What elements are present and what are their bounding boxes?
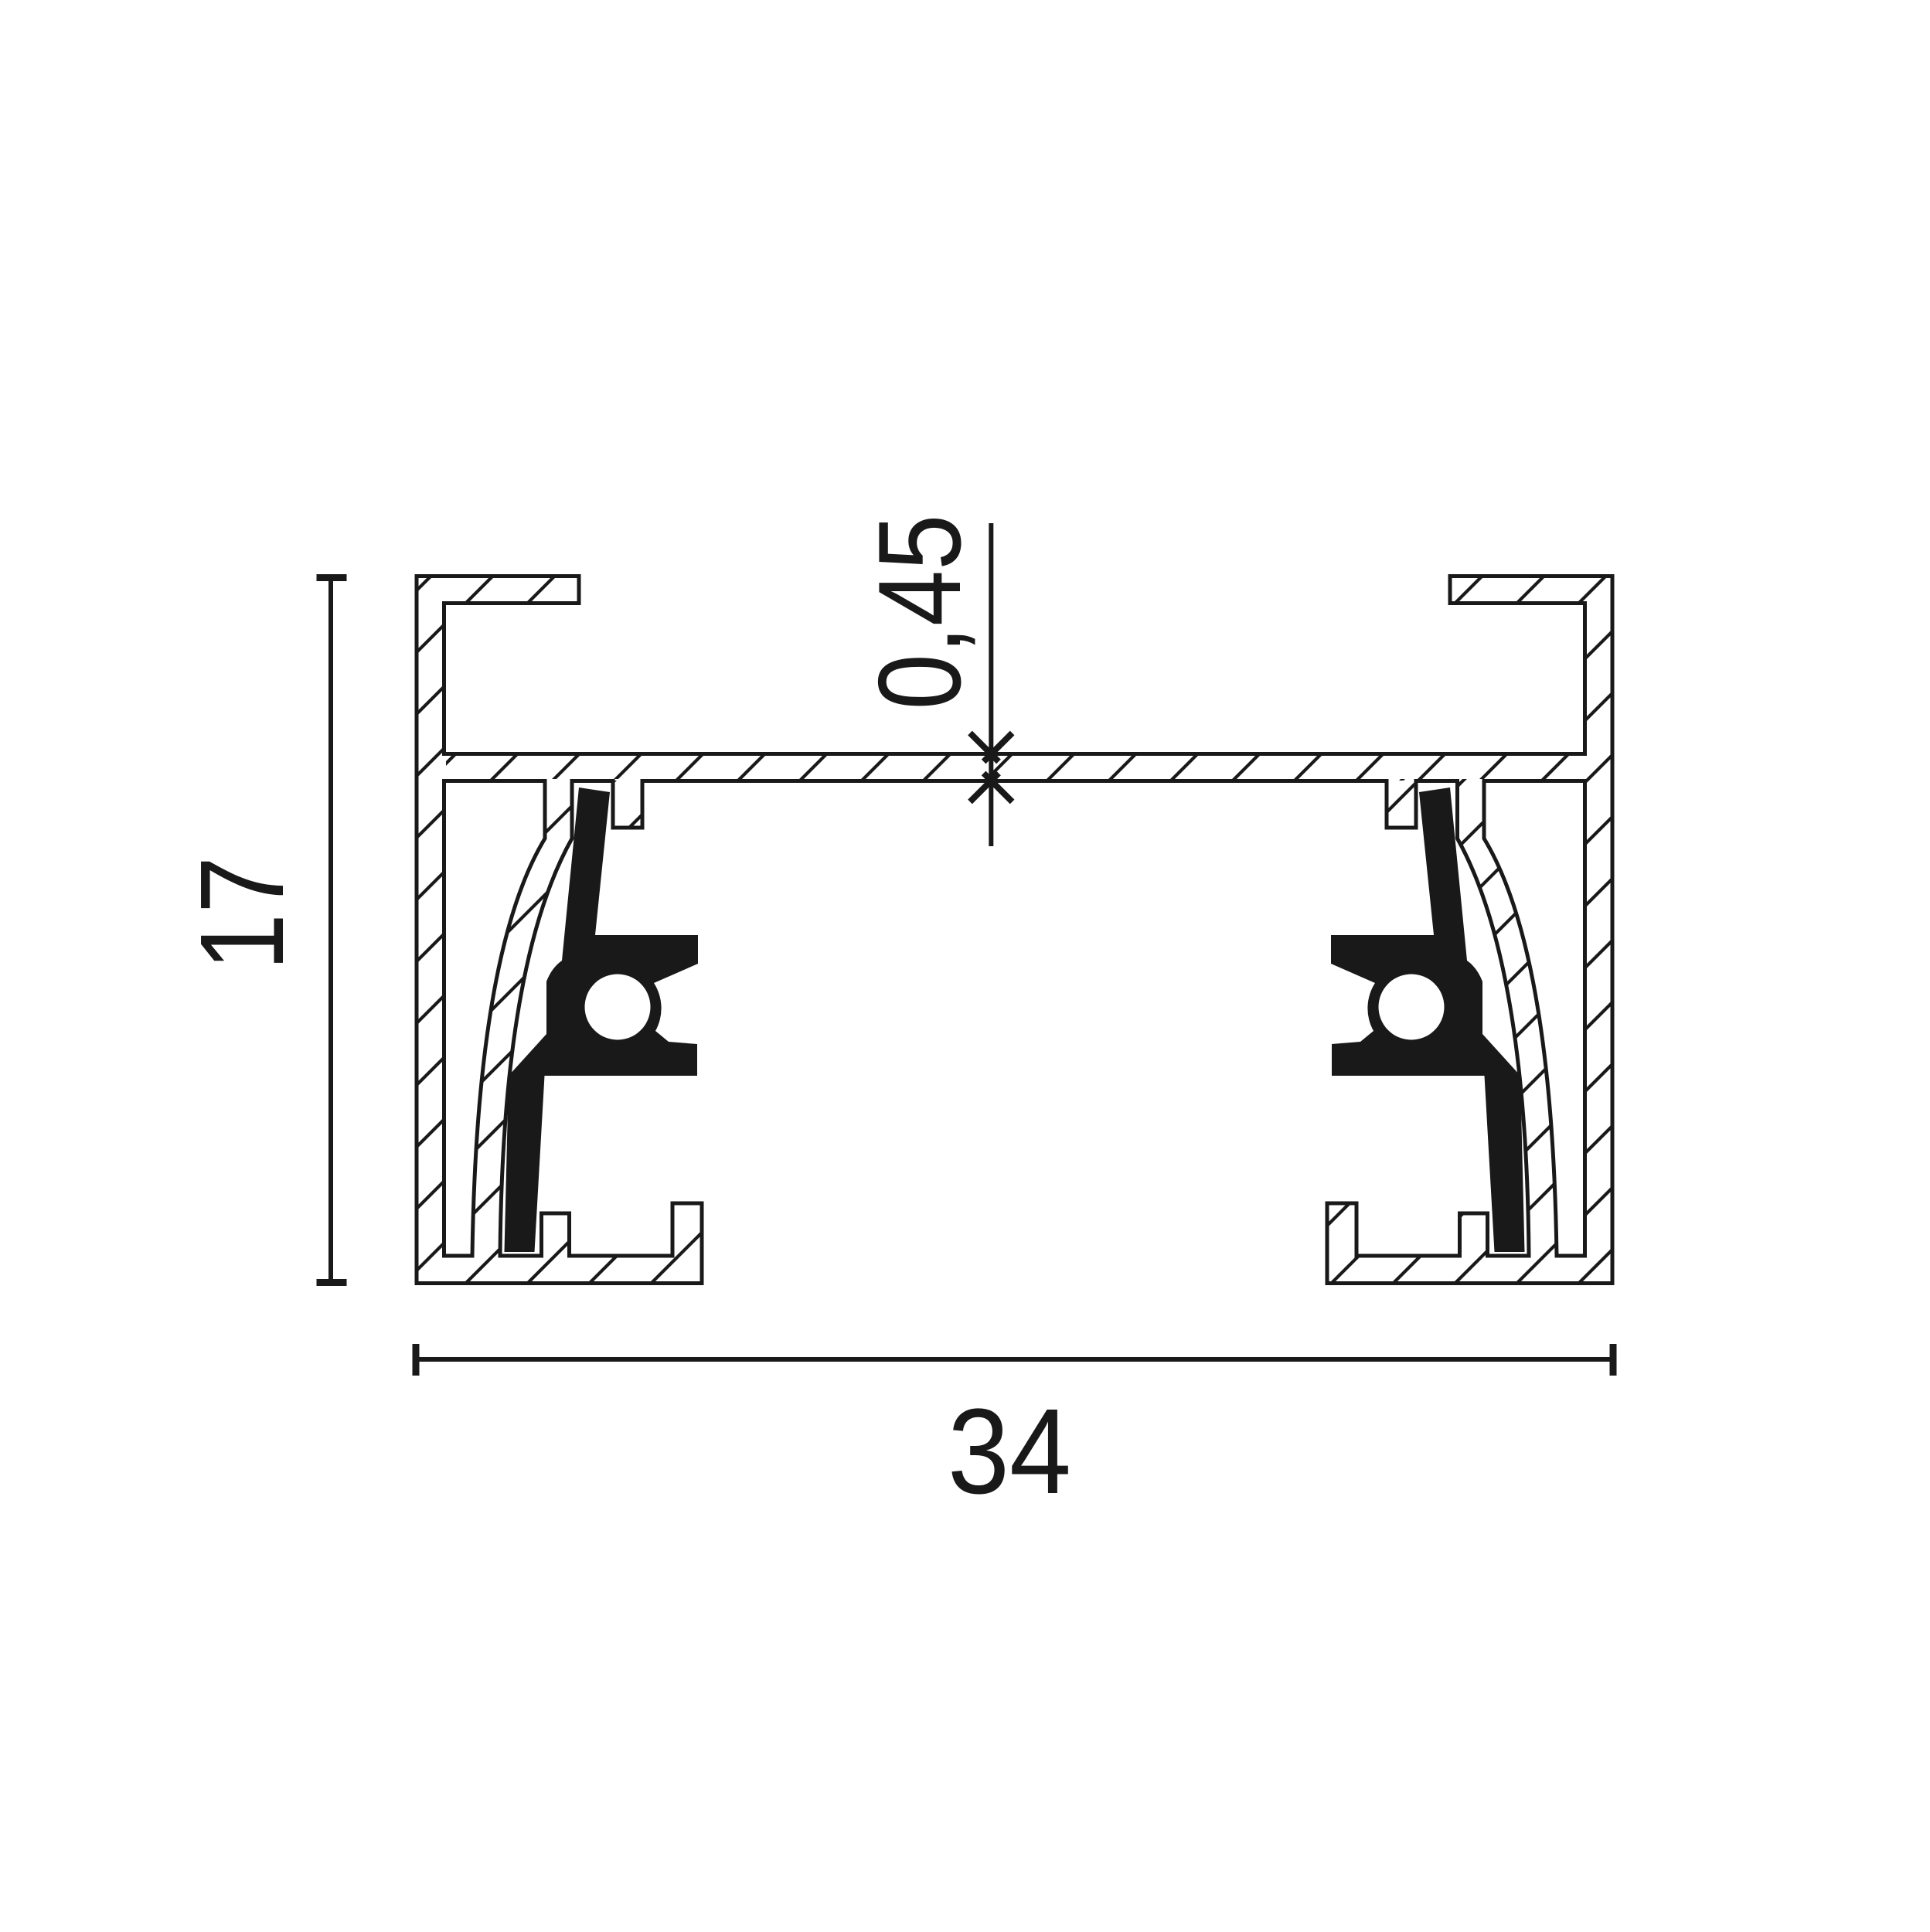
svg-text:0,45: 0,45 (854, 515, 985, 710)
svg-text:34: 34 (948, 1384, 1071, 1519)
svg-text:17: 17 (175, 856, 308, 971)
